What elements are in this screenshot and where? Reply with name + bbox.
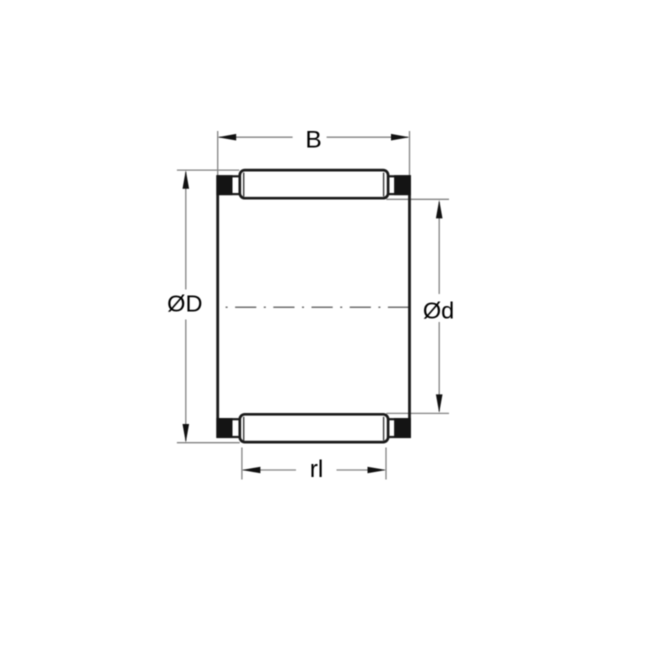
svg-text:Ød: Ød bbox=[423, 297, 454, 323]
svg-text:rl: rl bbox=[310, 456, 324, 483]
svg-text:ØD: ØD bbox=[167, 291, 202, 317]
svg-text:B: B bbox=[305, 127, 321, 154]
